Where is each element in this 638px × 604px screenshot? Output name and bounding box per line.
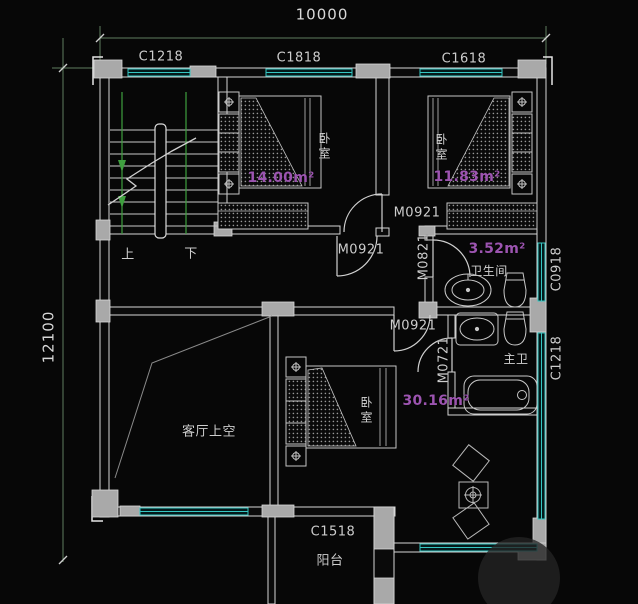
window-c1818-top [266, 69, 352, 76]
room-label-bedroom-left: 卧室 [318, 132, 330, 162]
area-label-bathroom: 3.52m² [468, 242, 525, 256]
sink-lower [456, 313, 498, 345]
stair-down-label: 下 [184, 248, 198, 261]
stair-handrail [155, 124, 166, 238]
toilet-lower [504, 312, 526, 345]
floorplan-linework [0, 0, 638, 604]
floor-plan-canvas: 10000 12100 C1218 C1818 C1618 C0918 C121… [0, 0, 638, 604]
window-label-top-right: C1618 [442, 53, 487, 66]
void-break-line [115, 316, 272, 478]
staircase [108, 92, 218, 238]
door-label-bath-lower: M0721 [438, 337, 451, 384]
room-label-bedroom-right: 卧室 [435, 133, 447, 163]
room-label-bathroom: 卫生间 [470, 265, 508, 277]
sitting-furniture [453, 445, 489, 539]
window-c1518-bottom [140, 508, 248, 515]
side-table [459, 482, 488, 508]
stair-direction-lines [122, 92, 186, 234]
area-label-bedroom-left: 14.00m² [247, 171, 314, 185]
door-label-hall-top: M0921 [338, 244, 385, 257]
window-c1618-top [420, 69, 502, 76]
door-bedroom-right [344, 194, 382, 232]
area-label-bedroom-right: 11.83m² [433, 170, 500, 184]
bedroom-bottom-furniture [286, 357, 396, 466]
window-label-right-lower: C1218 [551, 336, 564, 381]
window-label-bottom: C1518 [311, 526, 356, 539]
door-bath-upper [433, 240, 470, 277]
dimension-top-label: 10000 [296, 8, 349, 23]
area-label-bedroom-bottom: 30.16m² [402, 394, 469, 408]
room-label-master-bathroom: 主卫 [503, 353, 528, 365]
window-label-right-upper: C0918 [551, 247, 564, 292]
window-c0918-right [538, 243, 545, 301]
window-c1218-right [538, 333, 545, 519]
room-label-balcony: 阳台 [316, 555, 343, 568]
stair-break-line [108, 138, 196, 205]
bedroom-left-furniture [218, 92, 321, 229]
window-c1218-top [128, 69, 190, 76]
door-label-bath-upper: M0821 [418, 234, 431, 281]
room-label-bedroom-bottom: 卧室 [360, 396, 372, 426]
dimension-left-label: 12100 [42, 311, 57, 364]
window-label-top-center: C1818 [277, 52, 322, 65]
window-label-top-left: C1218 [139, 51, 184, 64]
door-label-bedroom-bottom: M0921 [390, 320, 437, 333]
door-label-bedroom-right: M0921 [394, 207, 441, 220]
sink-upper [445, 274, 491, 306]
room-label-living-void: 客厅上空 [182, 426, 236, 439]
stair-up-label: 上 [121, 249, 135, 262]
toilet-upper [504, 273, 526, 307]
chair-top [453, 445, 489, 481]
